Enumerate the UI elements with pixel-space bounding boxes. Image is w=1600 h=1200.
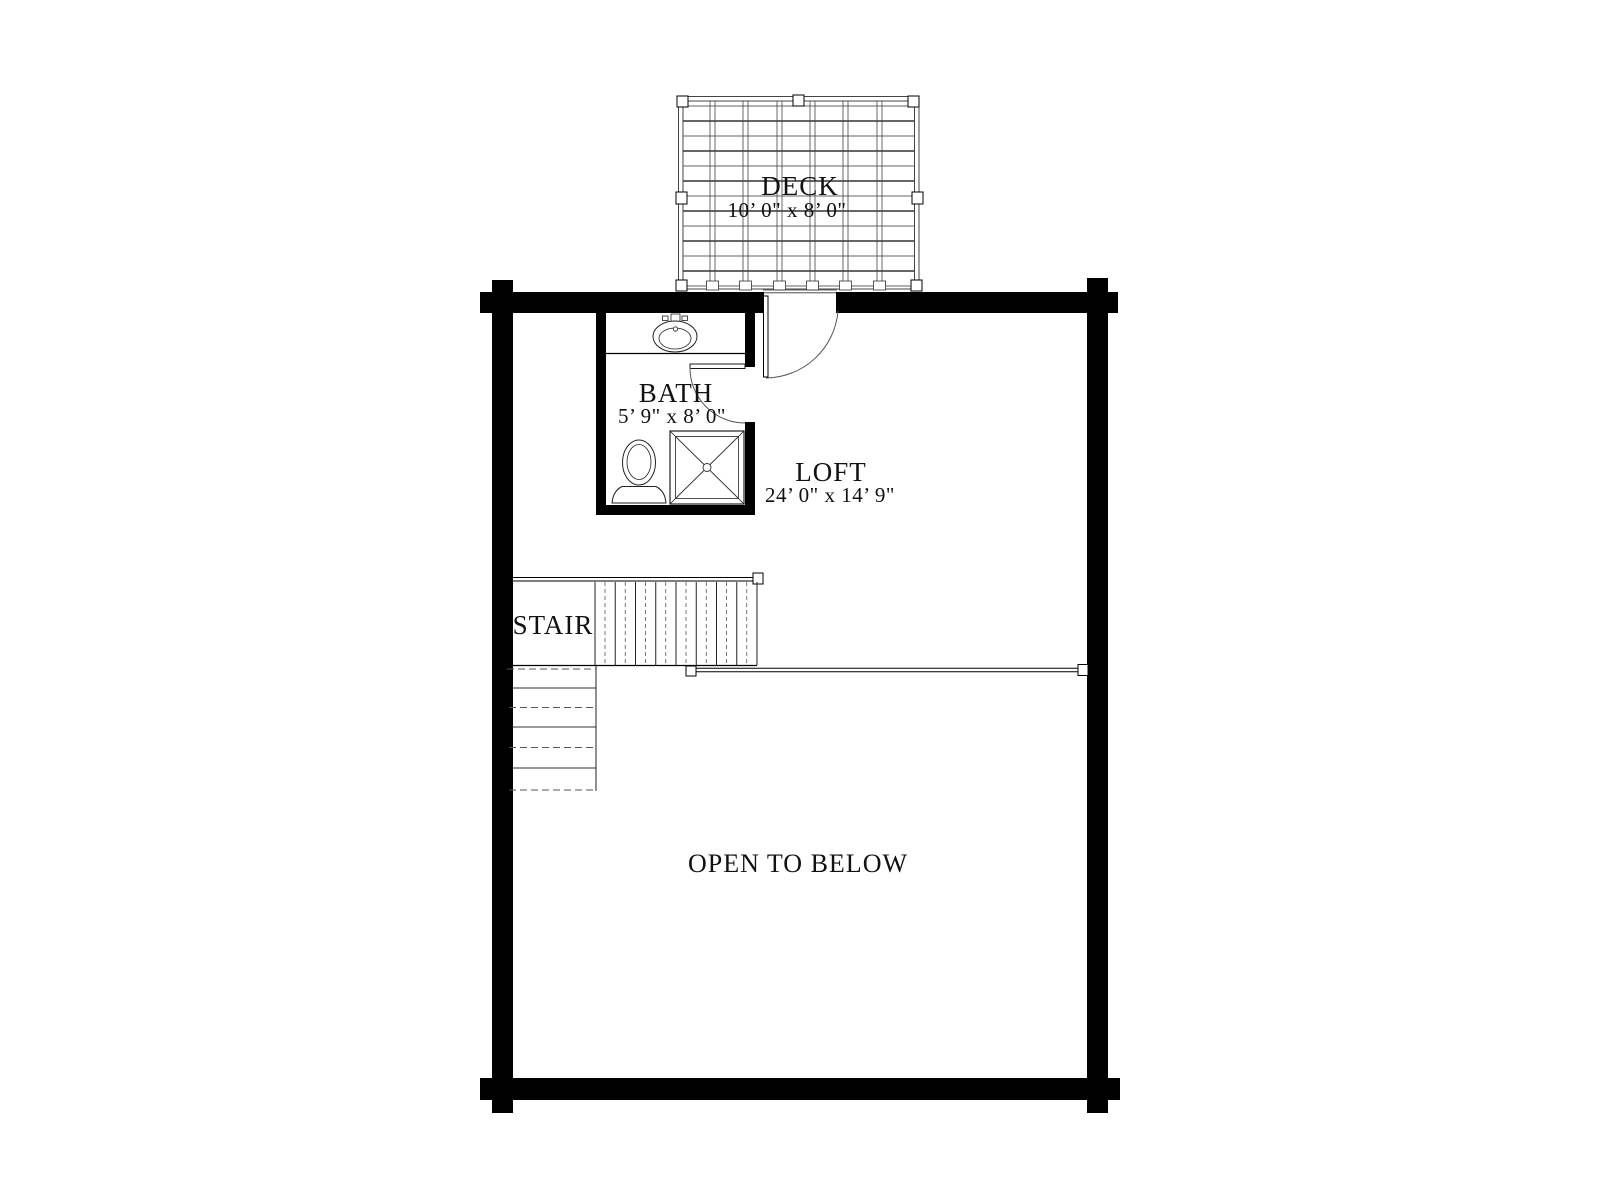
stair-top-rail: [513, 573, 763, 584]
deck-door: [763, 290, 838, 378]
stair-lower-run: [507, 666, 596, 792]
sink: [653, 314, 697, 352]
top-wall-left-segment: [480, 292, 763, 313]
stair: [507, 573, 1088, 791]
vanity: [606, 314, 745, 354]
exterior-walls: [480, 278, 1120, 1113]
floor-plan-drawing: DECK 10’ 0" x 8’ 0" BATH 5’ 9" x 8’ 0" L…: [0, 0, 1600, 1200]
stair-label: STAIR: [513, 610, 594, 640]
bottom-wall: [480, 1078, 1120, 1100]
toilet: [612, 440, 666, 503]
door-leaf: [764, 296, 769, 377]
deck-dimensions: 10’ 0" x 8’ 0": [727, 198, 846, 222]
open-to-below-label: OPEN TO BELOW: [688, 849, 908, 878]
door-leaf: [690, 364, 745, 369]
right-wall: [1087, 278, 1108, 1113]
bath-dimensions: 5’ 9" x 8’ 0": [618, 404, 726, 428]
left-wall: [492, 280, 513, 1113]
loft-railing: [686, 665, 1088, 677]
deck-label: DECK: [761, 171, 839, 201]
loft-dimensions: 24’ 0" x 14’ 9": [765, 483, 895, 507]
door-swing-arc: [766, 311, 838, 378]
floor-plan-canvas: DECK 10’ 0" x 8’ 0" BATH 5’ 9" x 8’ 0" L…: [0, 0, 1600, 1200]
top-wall-right-segment: [837, 292, 1118, 313]
shower: [670, 431, 744, 504]
